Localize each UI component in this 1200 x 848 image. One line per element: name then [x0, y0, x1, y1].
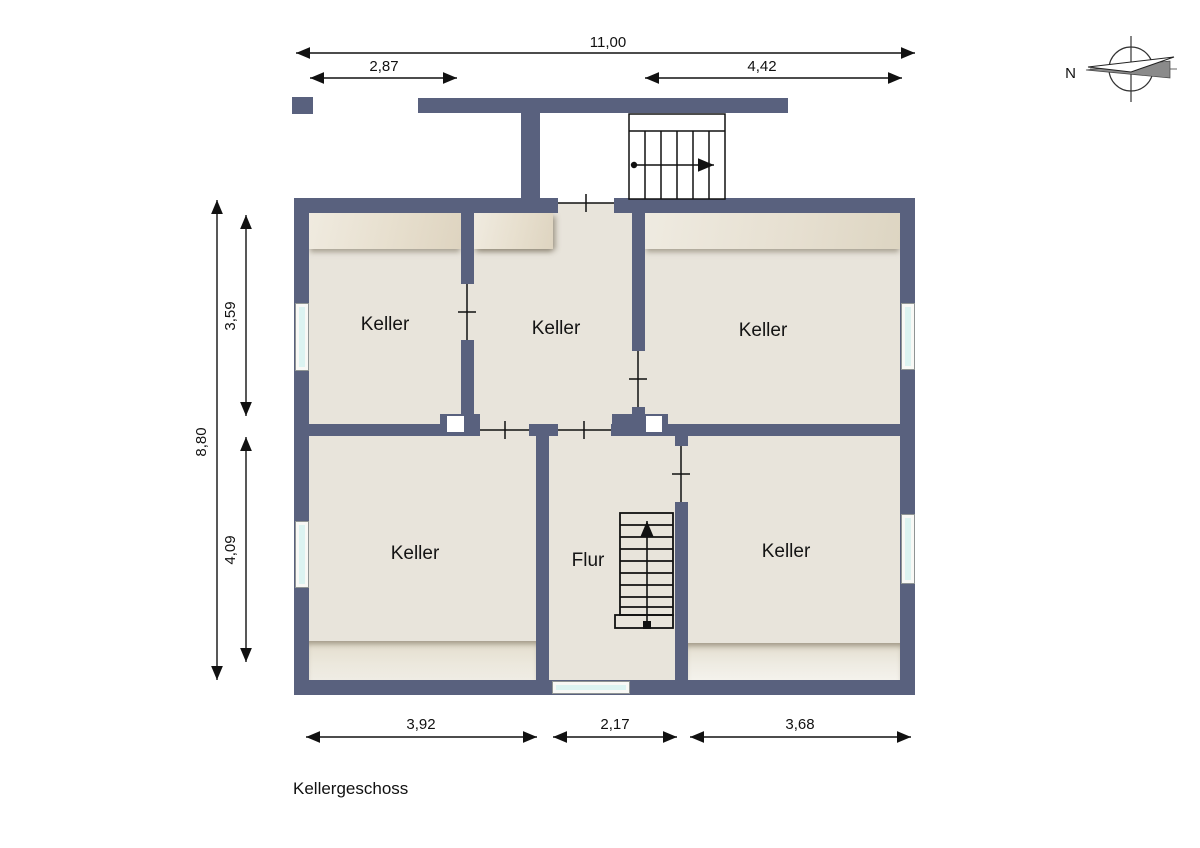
room-label-flur: Flur	[572, 550, 605, 572]
room-label-keller-bottom-left: Keller	[391, 543, 440, 565]
floor-plan: 11,00 2,87 4,42 8,80 3,59 4,09 3,92 2,17…	[0, 0, 1200, 848]
annotations-layer: 11,00 2,87 4,42 8,80 3,59 4,09 3,92 2,17…	[0, 0, 1200, 848]
dim-bottom-right-width: 3,68	[785, 716, 814, 733]
room-label-keller-middle: Keller	[532, 318, 581, 340]
dim-bottom-left-width: 3,92	[406, 716, 435, 733]
exterior-stairs	[629, 114, 725, 199]
door-lines	[458, 194, 690, 502]
dim-top-right-width: 4,42	[747, 58, 776, 75]
dim-lower-height: 4,09	[222, 535, 239, 564]
dim-total-width: 11,00	[590, 34, 626, 51]
room-label-keller-top-right: Keller	[739, 320, 788, 342]
compass-north-label: N	[1065, 65, 1076, 82]
compass-rose: N	[1065, 36, 1177, 102]
dim-total-height: 8,80	[193, 427, 210, 456]
dim-bottom-middle-width: 2,17	[600, 716, 629, 733]
page-title: Kellergeschoss	[293, 779, 408, 799]
dim-upper-height: 3,59	[222, 301, 239, 330]
dimension-lines	[217, 53, 915, 737]
room-label-keller-top-left: Keller	[361, 314, 410, 336]
interior-stairs	[615, 513, 673, 628]
dim-top-left-width: 2,87	[369, 58, 398, 75]
room-label-keller-bottom-right: Keller	[762, 541, 811, 563]
